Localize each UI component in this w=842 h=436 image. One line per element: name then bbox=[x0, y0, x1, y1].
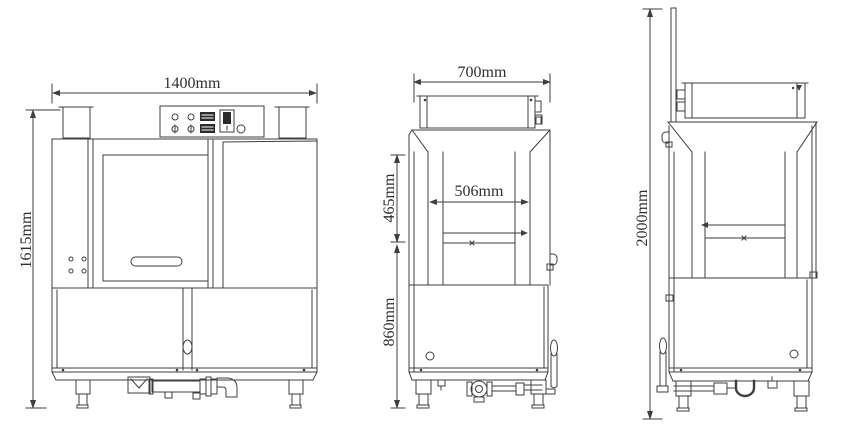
hood-latch-icon bbox=[662, 132, 669, 143]
side-width-label: 700mm bbox=[458, 64, 507, 81]
base-height-dimension: 860mm bbox=[381, 244, 405, 409]
side-lower-cabinet bbox=[409, 135, 548, 408]
drain-pipe bbox=[152, 381, 200, 392]
base-height-label: 860mm bbox=[381, 297, 398, 346]
front-upper-body bbox=[52, 139, 317, 288]
door-handle bbox=[131, 257, 182, 266]
opening-height-dimension: 465mm bbox=[381, 154, 405, 243]
side-wash-chamber bbox=[428, 152, 530, 285]
left-stack bbox=[63, 107, 90, 138]
front-view: 1400mm 1615mm bbox=[18, 75, 317, 409]
drain-elbow-icon bbox=[217, 378, 237, 397]
right-foot bbox=[531, 380, 546, 394]
drain-valve-icon bbox=[471, 381, 487, 397]
left-foot bbox=[416, 380, 431, 394]
start-button-icon bbox=[237, 125, 245, 133]
raised-drain-plumbing bbox=[674, 377, 777, 396]
raised-lift-handle bbox=[657, 338, 668, 392]
front-lower-cabinet bbox=[52, 288, 317, 372]
left-foot bbox=[676, 381, 691, 396]
pilot-light-icon bbox=[69, 257, 73, 261]
hood-hook-icon bbox=[677, 102, 685, 111]
hinge-bracket-icon bbox=[535, 101, 541, 112]
valve-handle-icon bbox=[183, 340, 192, 354]
display-block-icon bbox=[200, 112, 215, 121]
indicator-lamp-icon bbox=[172, 114, 178, 120]
front-control-panel bbox=[160, 106, 264, 137]
raised-hood-top bbox=[677, 83, 808, 118]
side-hood-top bbox=[417, 96, 542, 128]
raised-wash-chamber bbox=[666, 122, 817, 372]
lift-handle-icon bbox=[660, 338, 667, 354]
display-block-icon bbox=[200, 124, 215, 133]
right-stack bbox=[279, 107, 306, 138]
hood-latch-icon bbox=[550, 254, 557, 265]
technical-drawing-canvas: 1400mm 1615mm bbox=[0, 0, 842, 436]
hood-hook-icon bbox=[677, 90, 685, 99]
raised-height-label: 2000mm bbox=[634, 189, 651, 246]
side-view-hood-closed: 700mm bbox=[381, 64, 558, 409]
three-view-drawing: 1400mm 1615mm bbox=[0, 0, 842, 436]
cable-gland-icon bbox=[426, 352, 434, 360]
opening-height-label: 465mm bbox=[381, 173, 398, 222]
cable-gland-icon bbox=[790, 350, 798, 358]
side-drain-plumbing bbox=[438, 380, 542, 402]
right-foot bbox=[289, 380, 303, 394]
front-width-label: 1400mm bbox=[164, 75, 221, 92]
front-width-dimension: 1400mm bbox=[52, 75, 317, 103]
pilot-light-icon bbox=[82, 269, 86, 273]
side-view-hood-raised: 2000mm bbox=[634, 8, 817, 420]
raised-height-dimension: 2000mm bbox=[634, 8, 662, 420]
hood-guide-pole bbox=[671, 8, 676, 122]
chamber-width-label: 506mm bbox=[455, 183, 504, 200]
arrowhead-right-icon bbox=[309, 90, 317, 96]
raised-hood-canopy bbox=[662, 122, 817, 152]
indicator-lamp-icon bbox=[188, 114, 194, 120]
right-foot bbox=[794, 381, 809, 396]
pilot-light-icon bbox=[69, 269, 73, 273]
front-exhaust-stacks bbox=[59, 107, 309, 138]
side-hood-canopy bbox=[409, 130, 550, 285]
front-height-dimension: 1615mm bbox=[18, 109, 60, 409]
left-foot bbox=[76, 380, 90, 394]
pilot-light-icon bbox=[82, 257, 86, 261]
drain-trap-icon bbox=[736, 381, 754, 396]
front-base-and-feet bbox=[52, 372, 317, 408]
lift-handle-icon bbox=[551, 340, 558, 356]
arrowhead-left-icon bbox=[52, 90, 60, 96]
chamber-width-dimension: 506mm bbox=[429, 183, 529, 205]
front-height-label: 1615mm bbox=[18, 211, 35, 268]
